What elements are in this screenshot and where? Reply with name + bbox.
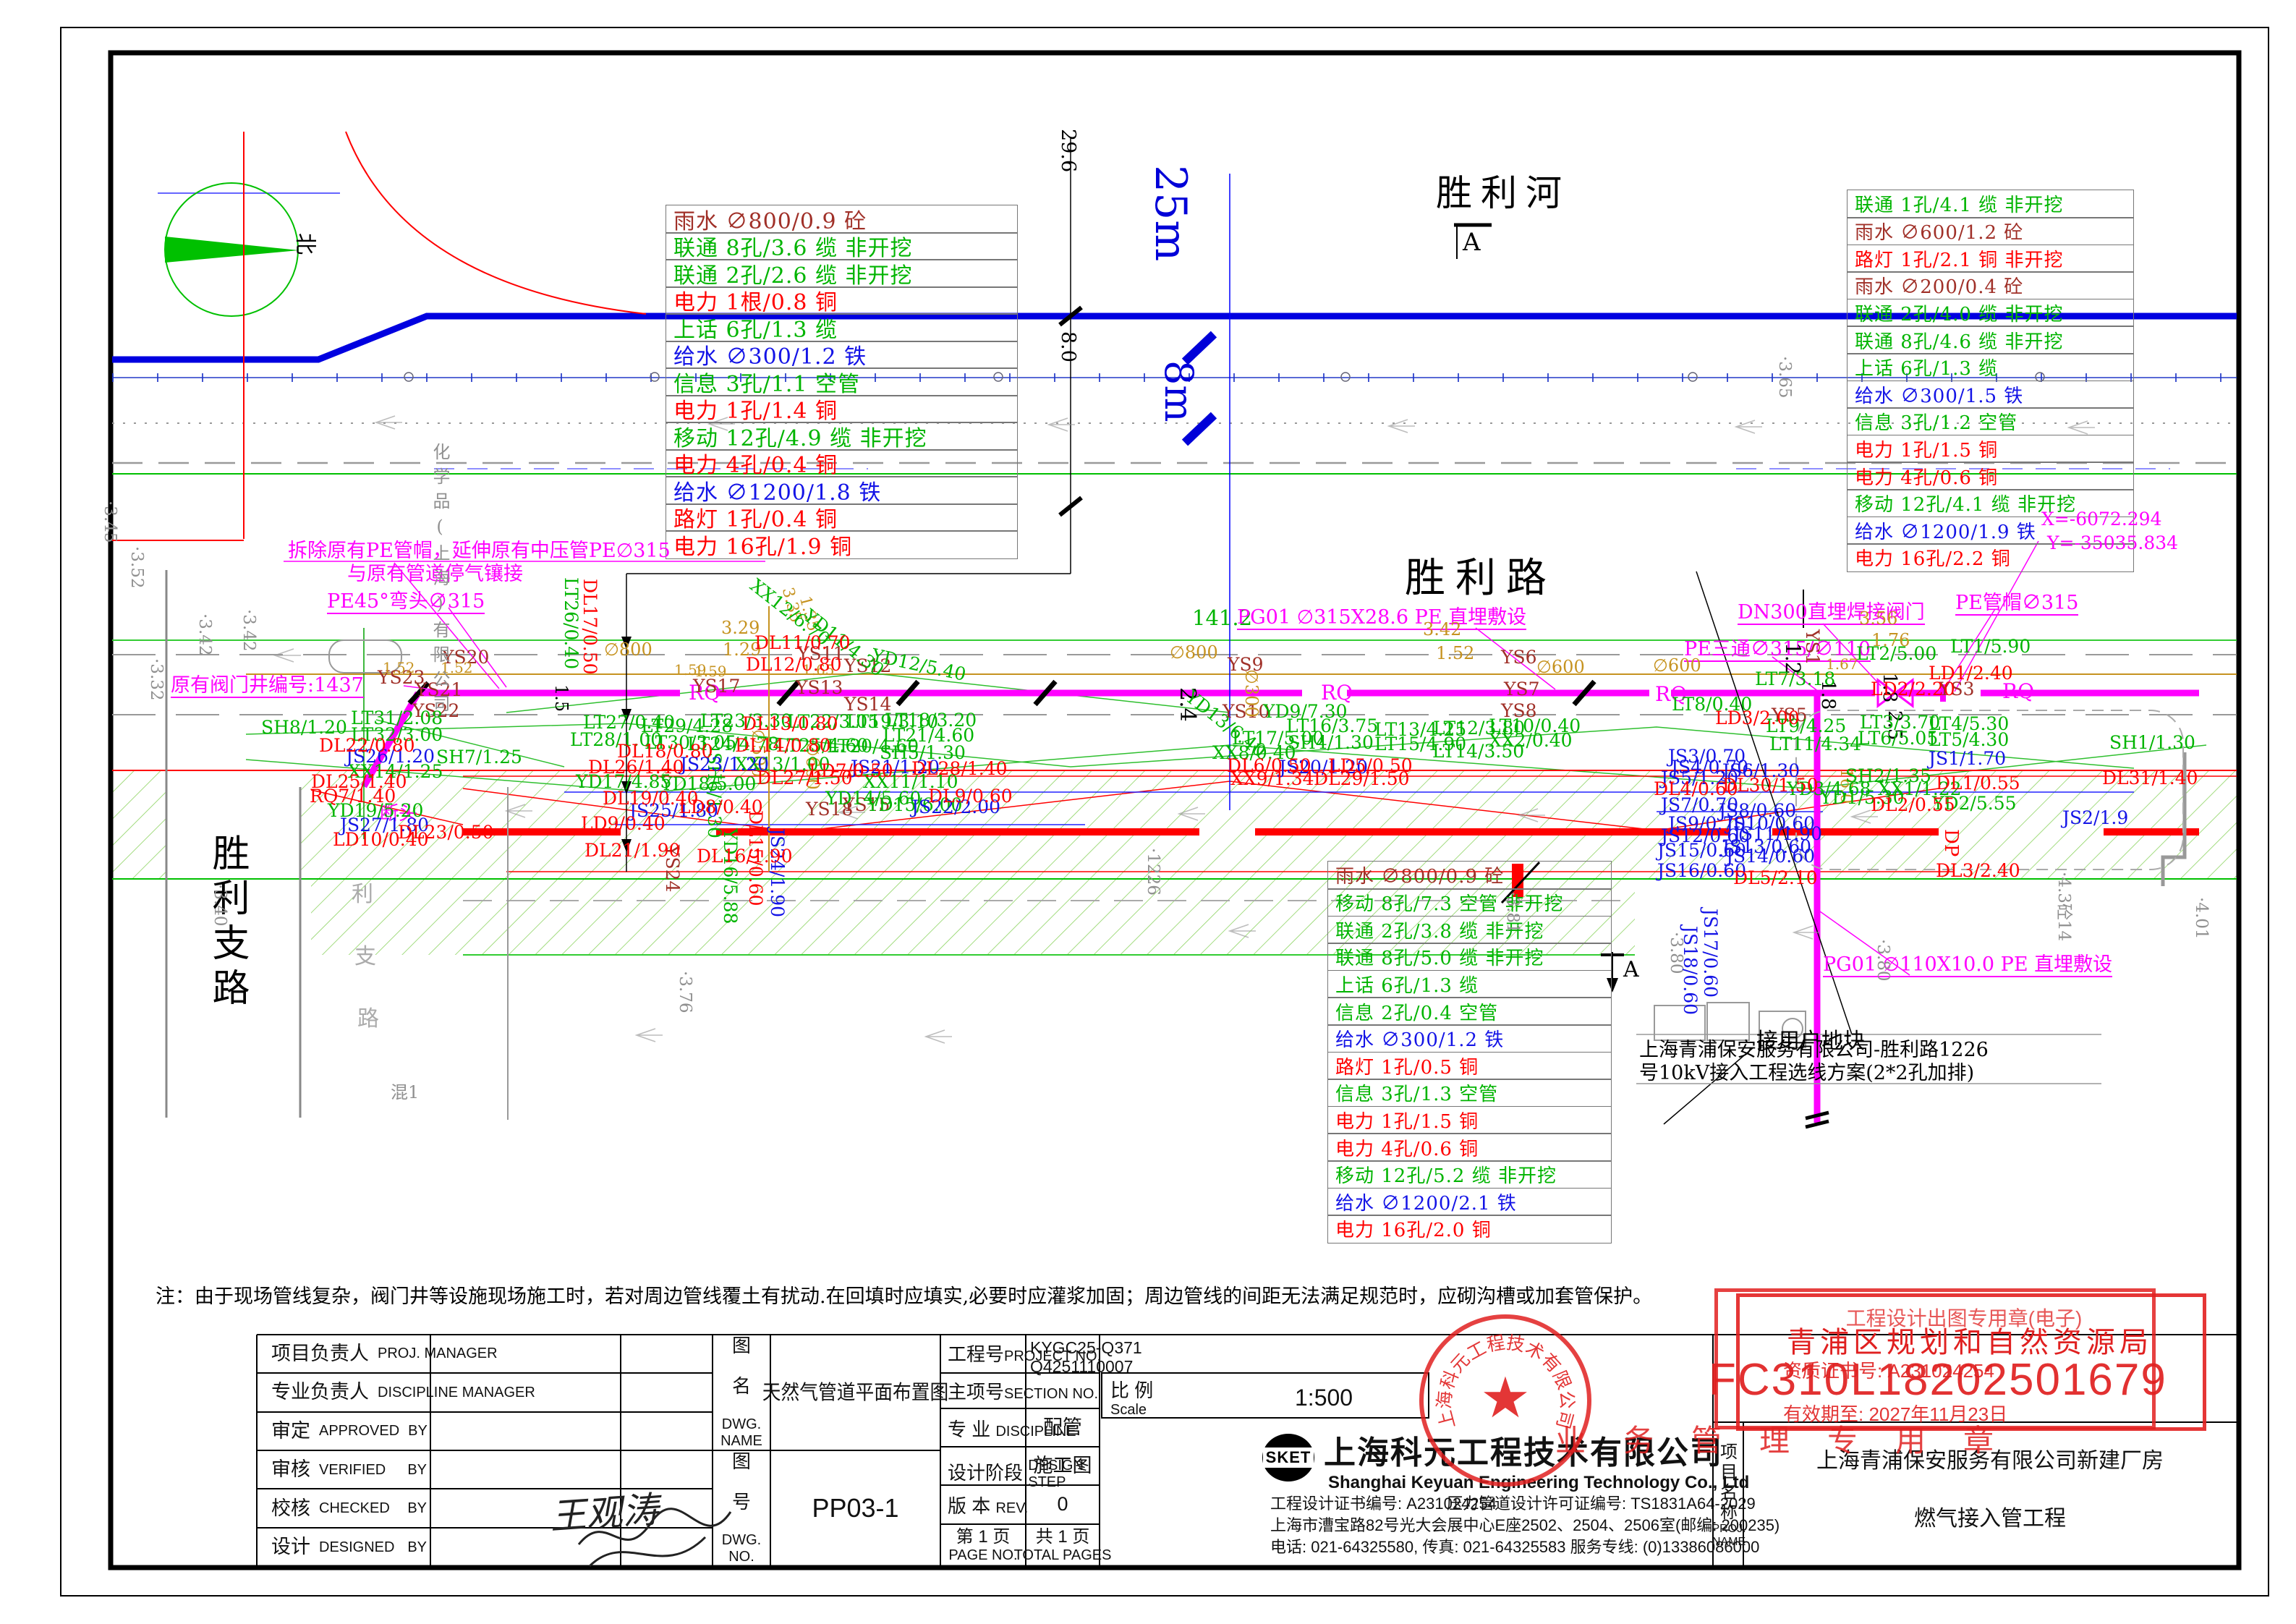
utility-row: 移动 12孔/5.2 缆 非开挖 <box>1327 1160 1612 1189</box>
plan-label: LT11/4.34 <box>1769 735 1861 753</box>
company-name-en: Shanghai Keyuan Engineering Technology C… <box>1328 1473 1749 1493</box>
plan-label: RQ <box>1321 683 1353 703</box>
plan-label: DL29/1.50 <box>1314 770 1410 788</box>
plan-label: LT26/0.40 <box>562 577 580 669</box>
license-code: FC310L18202501679 <box>1709 1354 2167 1406</box>
seal-char: 有 <box>1536 1347 1567 1378</box>
plan-label: 1.5 <box>553 684 570 712</box>
dwg-name-value: 天然气管道平面布置图 <box>777 1335 933 1450</box>
plan-label: ·1226 <box>1144 848 1161 896</box>
plan-label: 上海青浦保安服务有限公司-胜利路1226 <box>1639 1040 1989 1060</box>
plan-label: DP <box>1942 829 1960 856</box>
utility-row: 雨水 ∅200/0.4 砼 <box>1847 271 2134 299</box>
design-step-value: 施工图 <box>1026 1447 1100 1485</box>
project-no-value: KYGC25-Q371 Q4251110007 <box>1030 1338 1142 1377</box>
rev-label: 版 本 REV. <box>948 1496 1028 1518</box>
company-cert2: 压力管道设计许可证编号: TS1831A64-2029 <box>1447 1495 1756 1513</box>
plan-label: JS15/0.60 <box>1657 841 1746 859</box>
utility-row: 给水 ∅1200/1.8 铁 <box>666 476 1018 504</box>
utility-table-bottom: 雨水 ∅800/0.9 砼移动 8孔/7.3 空管 非开挖联通 2孔/3.8 缆… <box>1327 862 1612 1243</box>
plan-label: DL28/1.40 <box>911 760 1008 778</box>
plan-label: ·3.65 <box>1776 356 1793 399</box>
plan-label: X=-6072.294 <box>2041 510 2161 528</box>
project-name-line2: 燃气接入管工程 <box>1743 1497 2237 1541</box>
plan-label: LD2/2.20 <box>1871 680 1955 698</box>
approval-row: 项目负责人PROJ. MANAGER <box>271 1335 427 1373</box>
approval-row: 专业负责人DISCIPLINE MANAGER <box>271 1374 427 1412</box>
plan-label: YD12/5.40 <box>870 646 968 684</box>
seal-char: 科 <box>1433 1366 1464 1393</box>
plan-label: 号10kV接入工程选线方案(2*2孔加排) <box>1639 1063 1974 1083</box>
utility-row: 联通 2孔/3.8 缆 非开挖 <box>1327 916 1612 944</box>
seal-char: 公 <box>1554 1390 1581 1410</box>
plan-label: ·3.45 <box>101 501 118 543</box>
company-logo: SKET <box>1262 1434 1314 1481</box>
plan-label: DL14/0.80 <box>735 736 831 754</box>
plan-label: 胜利河 <box>1436 175 1570 211</box>
plan-label: DL31/1.40 <box>2102 769 2198 787</box>
scale-value: 1:500 <box>1295 1385 1353 1411</box>
plan-label: LT7/3.18 <box>1755 670 1835 688</box>
bureau-stamp-overlay: 工程设计出图专用章(电子) <box>1761 1303 2167 1332</box>
plan-label: 化学品(上海)有限公司 <box>431 443 448 719</box>
utility-row: 雨水 ∅800/0.9 砼 <box>1327 861 1612 889</box>
seal-char: 工 <box>1462 1334 1490 1366</box>
utility-row: 联通 8孔/5.0 缆 非开挖 <box>1327 943 1612 971</box>
plan-label: LT6/5.05 <box>1858 729 1938 747</box>
plan-label: JS2/1.9 <box>2062 809 2128 827</box>
utility-row: 给水 ∅1200/2.1 铁 <box>1327 1188 1612 1216</box>
scale-label: 比 例 Scale <box>1110 1380 1153 1419</box>
plan-label: YD9/7.30 <box>1263 702 1348 720</box>
utility-row: 联通 8孔/4.6 缆 非开挖 <box>1847 326 2134 354</box>
plan-label: 8.0 <box>1058 331 1078 362</box>
plan-label: 路 <box>357 1008 379 1030</box>
dwg-no-label: 图 号 DWG. NO. <box>714 1454 769 1563</box>
general-note: 注：由于现场管线复杂，阀门井等设施现场施工时，若对周边管线覆土有扰动.在回填时应… <box>156 1280 1652 1309</box>
utility-row: 上话 6孔/1.3 缆 <box>666 313 1018 341</box>
plan-label: DL3/2.40 <box>1936 862 2020 880</box>
plan-label: ·3.42 <box>240 609 257 652</box>
plan-label: YS13 <box>796 679 843 697</box>
plan-label: DL5/2.10 <box>1733 869 1818 887</box>
plan-label: LT1/5.90 <box>1950 637 2031 655</box>
plan-label: LT5/4.30 <box>1929 731 2009 749</box>
plan-label: YS7 <box>1504 680 1540 698</box>
plan-label: SH1/1.30 <box>2109 734 2195 752</box>
dwg-no-value: PP03-1 <box>770 1450 940 1566</box>
utility-row: 移动 8孔/7.3 空管 非开挖 <box>1327 888 1612 917</box>
plan-label: PE45°弯头∅315 <box>327 592 485 614</box>
drawing-page: 注：由于现场管线复杂，阀门井等设施现场施工时，若对周边管线覆土有扰动.在回填时应… <box>0 0 2296 1624</box>
seal-star-icon: ★ <box>1480 1365 1531 1431</box>
seal-char: 术 <box>1521 1334 1549 1366</box>
utility-row: 信息 3孔/1.3 空管 <box>1327 1079 1612 1107</box>
seal-char: 程 <box>1484 1328 1507 1357</box>
utility-row: 雨水 ∅800/0.9 砼 <box>666 205 1018 233</box>
utility-row: 电力 1孔/1.5 铜 <box>1847 435 2134 463</box>
plan-label: DL9/0.60 <box>928 787 1013 805</box>
utility-row: 信息 3孔/1.2 空管 <box>1847 407 2134 435</box>
utility-row: 雨水 ∅600/1.2 砼 <box>1847 217 2134 245</box>
plan-label: ∅300 <box>1243 669 1260 718</box>
plan-label: DL21/1.90 <box>584 841 681 859</box>
utility-row: 路灯 1孔/2.1 铜 非开挖 <box>1847 245 2134 273</box>
plan-label: ·4.3砼14 <box>2055 872 2072 941</box>
utility-row: 电力 1根/0.8 铜 <box>666 286 1018 315</box>
plan-label: DL4/0.60 <box>1654 780 1738 798</box>
utility-row: 给水 ∅300/1.2 铁 <box>1327 1024 1612 1053</box>
utility-row: 上话 6孔/1.3 缆 <box>1847 353 2134 381</box>
plan-label: 25m <box>1149 165 1192 261</box>
plan-label: PE管帽∅315 <box>1955 593 2078 616</box>
plan-label: DL2/0.55 <box>1871 796 1955 814</box>
plan-label: PG01 ∅315X28.6 PE 直埋敷设 <box>1237 608 1526 630</box>
plan-label: YS6 <box>1501 648 1537 666</box>
approval-row: 校核CHECKEDBY <box>271 1489 427 1528</box>
proj-name-label: 项 目 名 称 PROJ. NAME <box>1714 1425 1743 1567</box>
plan-label: RQ7/1.40 <box>310 787 396 805</box>
utility-row: 给水 ∅300/1.2 铁 <box>666 341 1018 369</box>
plan-label: 1.52 <box>1436 645 1474 662</box>
utility-row: 路灯 1孔/0.5 铜 <box>1327 1052 1612 1080</box>
plan-label: ·3.52 <box>128 546 145 589</box>
total-pages: 共 1 页TOTAL PAGES <box>1026 1524 1100 1567</box>
company-name-cn: 上海科元工程技术有限公司 <box>1324 1435 1723 1472</box>
plan-label: DL12/0.80 <box>746 655 842 673</box>
plan-label: ·3.80 <box>1874 939 1891 982</box>
company-address: 上海市漕宝路82号光大会展中心E座2502、2504、2506室(邮编: 200… <box>1270 1516 1780 1534</box>
discipline-value: 配管 <box>1026 1408 1100 1447</box>
utility-row: 联通 2孔/4.0 缆 非开挖 <box>1847 299 2134 327</box>
plan-label: A <box>1623 959 1639 981</box>
plan-label: LD9/0.40 <box>581 815 666 833</box>
plan-label: DL18/0.80 <box>617 742 713 760</box>
plan-label: ·3.32 <box>148 658 164 701</box>
seal-char: 限 <box>1547 1366 1578 1393</box>
utility-row: 路灯 1孔/0.4 铜 <box>666 503 1018 532</box>
utility-row: 电力 4孔/0.6 铜 <box>1847 462 2134 490</box>
plan-label: SH7/1.25 <box>436 748 522 766</box>
bureau-stamp-certno: 资质证书号: A231024254 <box>1783 1356 1994 1383</box>
plan-label: DL1/0.55 <box>1936 774 2020 792</box>
plan-label: 利 <box>352 884 373 906</box>
plan-label: 混1 <box>391 1084 419 1101</box>
plan-label: YD16/5.88 <box>721 828 739 924</box>
plan-label: ∅600 <box>1653 657 1701 674</box>
plan-label: A <box>1463 230 1481 255</box>
plan-label: 支 <box>354 946 376 968</box>
plan-label: SH8/1.20 <box>261 718 347 736</box>
approval-row: 设计DESIGNEDBY <box>271 1529 427 1567</box>
utility-row: 信息 2孔/0.4 空管 <box>1327 997 1612 1025</box>
page-no: 第 1 页PAGE NO. <box>940 1524 1026 1567</box>
rev-value: 0 <box>1026 1485 1100 1524</box>
plan-label: LT2/5.00 <box>1856 645 1936 663</box>
plan-label: ·3.81 <box>1504 891 1521 934</box>
plan-label: YS1 <box>1803 629 1821 666</box>
approval-row: 审定APPROVEDBY <box>271 1412 427 1450</box>
plan-label: ∅800 <box>604 641 652 658</box>
bureau-stamp-title: 青浦区规划和自然资源局 <box>1753 1319 2187 1361</box>
utility-row: 联通 1孔/4.1 缆 非开挖 <box>1847 190 2134 218</box>
plan-label: XX9/1.34 <box>1230 770 1314 788</box>
utility-row: 移动 12孔/4.9 缆 非开挖 <box>666 422 1018 450</box>
plan-label: 29.6 <box>1058 129 1078 172</box>
plan-label: ·3.76 <box>676 971 693 1013</box>
bureau-stamp: 青浦区规划和自然资源局 工程设计出图专用章(电子) 资质证书号: A231024… <box>1736 1293 2206 1431</box>
utility-row: 电力 1孔/1.5 铜 <box>1327 1106 1612 1134</box>
plan-label: DL13/0.80 <box>742 715 838 733</box>
plan-label: JS24/1.90 <box>768 828 786 917</box>
plan-label: 3.42 <box>1423 621 1461 638</box>
utility-table-left: 雨水 ∅800/0.9 砼联通 8孔/3.6 缆 非开挖联通 2孔/2.6 缆 … <box>666 206 1018 559</box>
utility-row: 电力 16孔/2.0 铜 <box>1327 1215 1612 1243</box>
bureau-stamp-validity: 有效期至: 2027年11月23日 <box>1783 1400 2007 1427</box>
plan-label: DL22/0.80 <box>319 736 415 754</box>
plan-label: ∅800 <box>1170 644 1218 661</box>
plan-label: JS17/0.60 <box>1701 909 1719 998</box>
plan-label: DL23/0.50 <box>398 823 494 841</box>
utility-row: 电力 4孔/0.4 铜 <box>666 449 1018 477</box>
plan-label: LD7/0.50 <box>809 762 893 780</box>
plan-label: 北 <box>294 233 315 255</box>
utility-row: 上话 6孔/1.3 缆 <box>1327 970 1612 998</box>
seal-char: 司 <box>1551 1408 1581 1432</box>
plan-label: DL17/0.50 <box>581 579 599 675</box>
utility-row: 电力 4孔/0.6 铜 <box>1327 1133 1612 1161</box>
plan-label: JS18/0.60 <box>1681 926 1699 1015</box>
plan-label: LD3/2.00 <box>1715 709 1800 727</box>
plan-label: 原有阀门井编号:1437 <box>171 676 364 698</box>
checked-signature: 王观涛 <box>548 1481 660 1540</box>
utility-row: 联通 2孔/2.6 缆 非开挖 <box>666 259 1018 287</box>
plan-label: ·3.42 <box>196 613 213 656</box>
project-name-line1: 上海青浦保安服务有限公司新建厂房 <box>1743 1440 2237 1483</box>
plan-label: RQ <box>2002 681 2034 702</box>
plan-label: DL11/0.70 <box>754 634 851 652</box>
seal-char: 上 <box>1431 1408 1460 1432</box>
plan-label: XX2/0.40 <box>1489 731 1573 749</box>
plan-label: DL15/0.60 <box>747 810 765 906</box>
plan-label: Y=-35035.834 <box>2047 534 2178 552</box>
utility-row: 电力 1孔/1.4 铜 <box>666 395 1018 423</box>
plan-label: ·3.40 <box>211 884 228 927</box>
plan-label: 3.56 <box>1859 610 1897 627</box>
utility-row: 联通 8孔/3.6 缆 非开挖 <box>666 232 1018 260</box>
company-phone: 电话: 021-64325580, 传真: 021-64325583 服务专线:… <box>1270 1538 1759 1556</box>
utility-row: 给水 ∅300/1.5 铁 <box>1847 381 2134 409</box>
utility-row: 信息 3孔/1.1 空管 <box>666 367 1018 396</box>
section-no-label: 主项号SECTION NO. <box>948 1382 1098 1403</box>
dwg-name-label: 图 名 DWG. NAME <box>714 1338 769 1447</box>
seal-char: 技 <box>1505 1328 1527 1357</box>
plan-label: ∅600 <box>1536 658 1585 676</box>
plan-label: 1.52 <box>383 660 415 675</box>
approval-row: 审核VERIFIEDBY <box>271 1451 427 1489</box>
plan-label: 1.59 <box>694 664 727 679</box>
seal-char: 元 <box>1444 1347 1475 1378</box>
plan-label: 8m <box>1159 360 1198 422</box>
plan-label: 拆除原有PE管帽，延伸原有中压管PE∅315 <box>288 541 671 561</box>
plan-label: ·4.01 <box>2193 897 2209 940</box>
plan-label: JS1/1.70 <box>1929 749 2006 768</box>
plan-label: PG01 ∅110X10.0 PE 直埋敷设 <box>1823 955 2112 977</box>
utility-row: 电力 16孔/1.9 铜 <box>666 530 1018 558</box>
seal-char: 海 <box>1430 1390 1458 1410</box>
plan-label: 胜利路 <box>1405 558 1557 599</box>
